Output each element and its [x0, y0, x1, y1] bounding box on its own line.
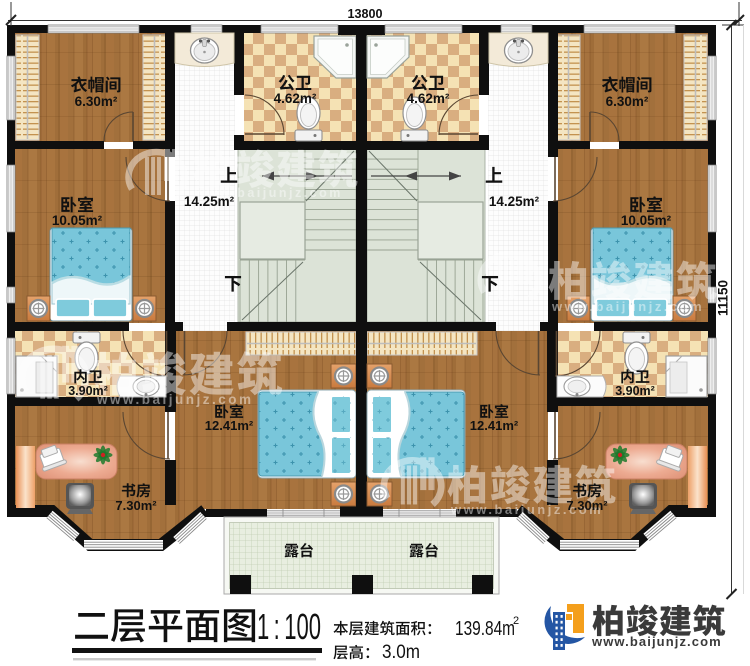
svg-text:14.25m²: 14.25m² — [489, 194, 540, 209]
svg-text:11150: 11150 — [716, 280, 731, 316]
svg-text:4.62m²: 4.62m² — [407, 91, 450, 106]
svg-text:3.90m²: 3.90m² — [615, 384, 655, 398]
svg-text:13800: 13800 — [348, 6, 383, 21]
svg-text:12.41m²: 12.41m² — [470, 418, 519, 433]
svg-text:10.05m²: 10.05m² — [621, 213, 672, 228]
svg-text:4.62m²: 4.62m² — [274, 91, 317, 106]
svg-text:www.baijunjz.com: www.baijunjz.com — [591, 634, 722, 649]
svg-text:2: 2 — [513, 615, 519, 627]
svg-text:6.30m²: 6.30m² — [606, 94, 649, 109]
svg-text:7.30m²: 7.30m² — [566, 498, 608, 513]
svg-text:139.84m: 139.84m — [455, 618, 515, 640]
svg-text:7.30m²: 7.30m² — [115, 498, 157, 513]
svg-text:3.0m: 3.0m — [382, 642, 420, 663]
svg-text:1 : 100: 1 : 100 — [257, 606, 321, 647]
svg-text:www.baijunjz.com: www.baijunjz.com — [96, 392, 254, 407]
svg-text:12.41m²: 12.41m² — [205, 418, 254, 433]
svg-text:10.05m²: 10.05m² — [52, 213, 103, 228]
svg-text:14.25m²: 14.25m² — [184, 194, 235, 209]
svg-text:6.30m²: 6.30m² — [75, 94, 118, 109]
svg-text:3.90m²: 3.90m² — [68, 384, 108, 398]
svg-text:www.baijunjz.com: www.baijunjz.com — [551, 299, 704, 314]
